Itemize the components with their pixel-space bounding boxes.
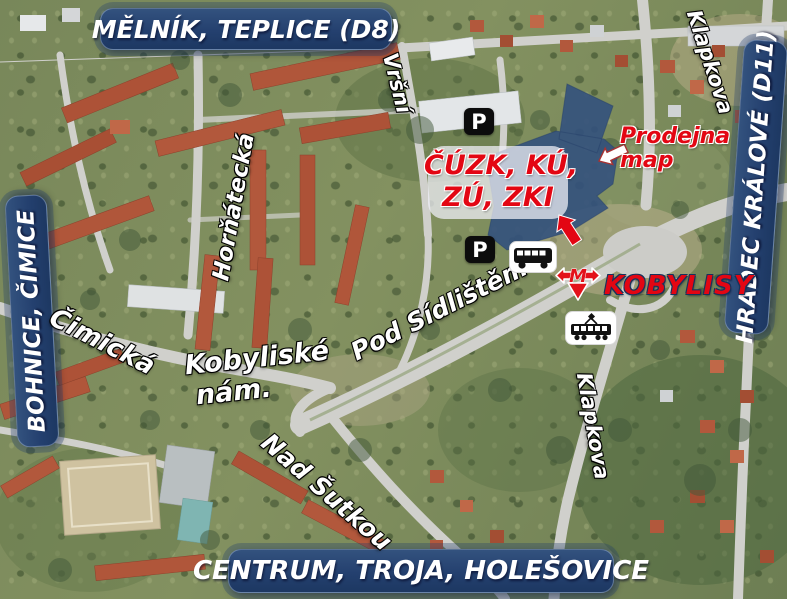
map-shop-line1: Prodejna [620,125,730,149]
parking-letter: P [471,110,486,134]
tram-icon [565,311,617,345]
map-shop-line2: map [620,149,730,173]
prague-metro-logo-icon: M [555,263,601,303]
office-line2: ZÚ, ZKI [424,182,572,214]
bus-icon [509,241,557,273]
banner-south-label: CENTRUM, TROJA, HOLEŠOVICE [193,556,649,586]
svg-text:M: M [569,266,587,287]
parking-icon-north: P [464,108,494,135]
metro-station-name: KOBYLISY [604,272,754,300]
banner-south: CENTRUM, TROJA, HOLEŠOVICE [228,549,614,593]
office-label: ČÚZK, KÚ, ZÚ, ZKI [424,150,572,215]
parking-letter: P [472,238,487,262]
banner-north: MĚLNÍK, TEPLICE (D8) [100,8,392,50]
office-line1: ČÚZK, KÚ, [424,150,572,182]
map-shop-label: Prodejna map [620,125,730,173]
banner-north-label: MĚLNÍK, TEPLICE (D8) [92,15,401,44]
parking-icon-south: P [465,236,495,263]
orientation-map: MĚLNÍK, TEPLICE (D8) BOHNICE, ČIMICE HRA… [0,0,787,599]
